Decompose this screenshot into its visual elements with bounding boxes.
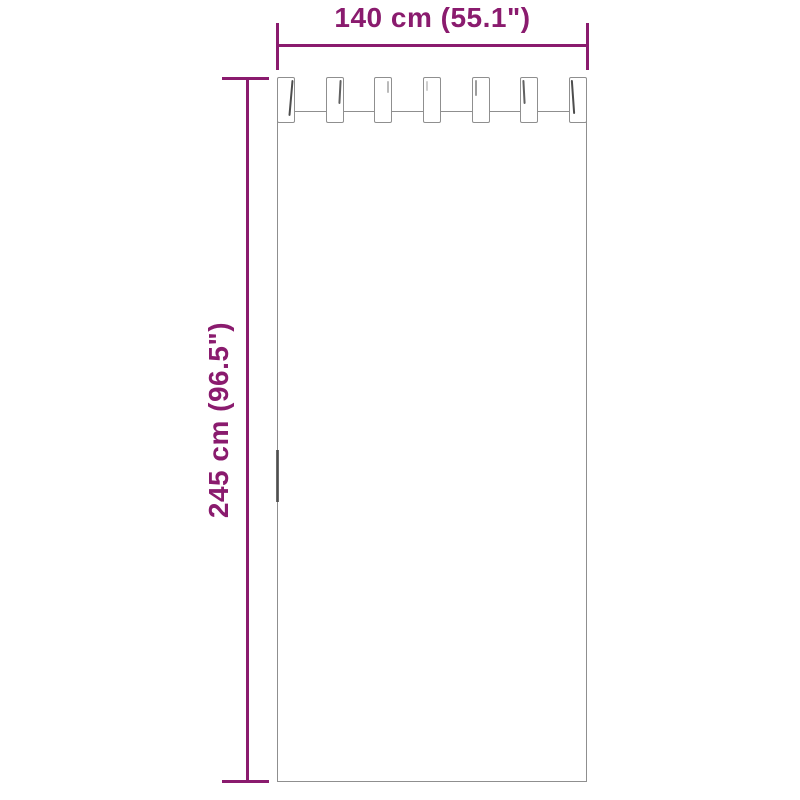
dimension-diagram: 140 cm (55.1") 245 cm (96.5") — [0, 0, 800, 800]
height-dimension-line — [246, 77, 249, 782]
curtain-tab — [520, 77, 538, 123]
width-dimension-label: 140 cm (55.1") — [277, 2, 588, 34]
curtain-tabs-row — [277, 77, 587, 123]
height-dimension-label: 245 cm (96.5") — [203, 322, 235, 518]
width-dimension-tick-left — [276, 23, 279, 70]
width-dimension-tick-right — [586, 23, 589, 70]
height-dimension-tick-bottom — [222, 780, 269, 783]
curtain-panel — [277, 111, 587, 782]
curtain-tab — [374, 77, 392, 123]
curtain-tab — [326, 77, 344, 123]
width-dimension-line — [277, 44, 588, 47]
curtain-left-edge-shade — [276, 450, 279, 502]
height-dimension-tick-top — [222, 77, 269, 80]
curtain-tab — [277, 77, 295, 123]
curtain-tab — [472, 77, 490, 123]
curtain-tab — [423, 77, 441, 123]
curtain-tab — [569, 77, 587, 123]
